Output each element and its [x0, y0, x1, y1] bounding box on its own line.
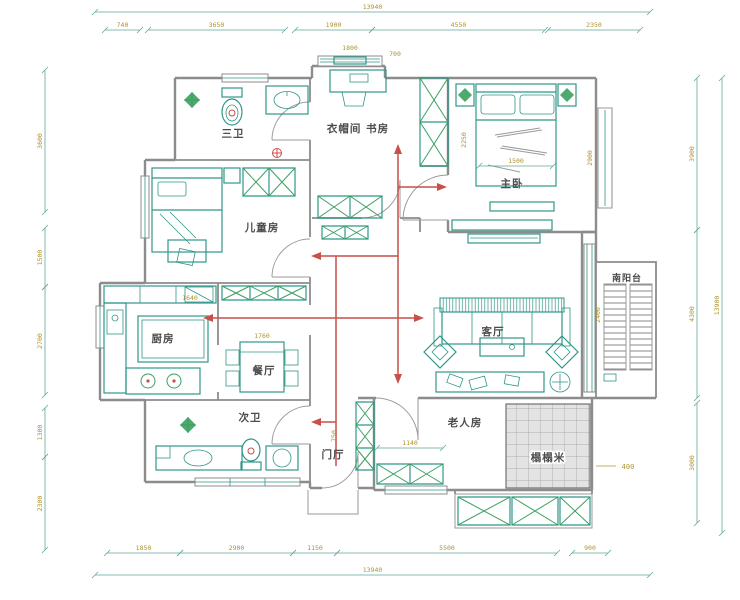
dimension-label: 1150 [307, 544, 323, 552]
dining-sideboard [222, 286, 306, 300]
room-label-bath2: 次卫 [239, 411, 262, 424]
interior-dimension-label: 2900 [586, 150, 594, 166]
dimension-label: 2300 [36, 496, 44, 512]
dimension-label: 3600 [36, 133, 44, 149]
room-label-kitchen: 厨房 [152, 332, 175, 345]
interior-dimension-label: 700 [389, 50, 401, 58]
room-label-living: 客厅 [481, 325, 505, 338]
interior-dimension-label: 2400 [594, 307, 602, 323]
dimension-label: 5500 [439, 544, 455, 552]
floor-plan-drawing: 400 三卫 衣帽间 书房 主卧 儿童房 厨房 餐厅 客厅 次卫 门厅 老人房 … [0, 0, 740, 600]
interior-dimension-label: 750 [330, 430, 338, 442]
room-label-balcony: 南阳台 [612, 272, 642, 284]
elder-door [376, 398, 418, 440]
dimension-label: 1500 [508, 157, 524, 165]
living-furniture [424, 298, 578, 392]
dimension-label: 1850 [136, 544, 152, 552]
dimension-label: 3000 [688, 455, 696, 471]
room-label-master: 主卧 [501, 177, 524, 190]
dimension-label: 1500 [36, 250, 44, 266]
floor-plan-canvas: 400 三卫 衣帽间 书房 主卧 儿童房 厨房 餐厅 客厅 次卫 门厅 老人房 … [0, 0, 740, 600]
room-label-kids: 儿童房 [244, 221, 280, 234]
dimension-label: 13940 [363, 566, 383, 574]
annotation-note: 400 [622, 463, 635, 471]
south-bay-cabinet-band [455, 494, 592, 528]
dimension-label: 2700 [36, 333, 44, 349]
elder-dresser [377, 464, 443, 484]
master-wardrobe-column [420, 78, 448, 166]
kids-door [272, 239, 310, 277]
room-label-foyer: 门厅 [322, 448, 345, 461]
dimension-label: 3900 [688, 146, 696, 162]
room-label-elder: 老人房 [447, 416, 483, 429]
dimension-label: 2350 [586, 21, 602, 29]
kids-furniture [152, 168, 240, 266]
sofa-back [440, 298, 564, 312]
dimension-label: 3650 [209, 21, 225, 29]
room-label-tatami: 榻榻米 [531, 451, 566, 464]
interior-dimension-label: 1640 [182, 294, 198, 302]
room-label-dining: 餐厅 [252, 364, 276, 377]
interior-dimension-label: 2250 [460, 132, 468, 148]
interior-dimension-label: 1760 [254, 332, 270, 340]
hall-shoe-cabinet [322, 226, 368, 239]
bath2-door [272, 406, 310, 444]
dimension-label: 4550 [451, 21, 467, 29]
dimension-label: 740 [117, 21, 129, 29]
bath3-door [272, 102, 310, 140]
kids-wardrobe [243, 168, 295, 196]
room-label-study: 衣帽间 书房 [327, 122, 389, 135]
balcony-drying-rack [604, 284, 652, 381]
study-door [362, 180, 400, 218]
dimension-label: 4300 [688, 306, 696, 322]
dimension-label: 900 [584, 544, 596, 552]
dimension-label: 1300 [36, 425, 44, 441]
bath3-fixtures [184, 86, 308, 158]
dimension-label: 13900 [713, 296, 721, 316]
foyer-closet [356, 402, 374, 470]
room-label-bath3: 三卫 [222, 128, 245, 140]
dimension-label: 2900 [229, 544, 245, 552]
tatami-platform [506, 404, 590, 488]
interior-dimension-label: 1800 [342, 44, 358, 52]
study-furniture [330, 70, 386, 106]
master-door [403, 175, 448, 220]
dimension-label: 13940 [363, 3, 383, 11]
study-cabinet [318, 196, 382, 218]
dimension-label: 1900 [326, 21, 342, 29]
dimension-label: 1140 [402, 439, 418, 447]
